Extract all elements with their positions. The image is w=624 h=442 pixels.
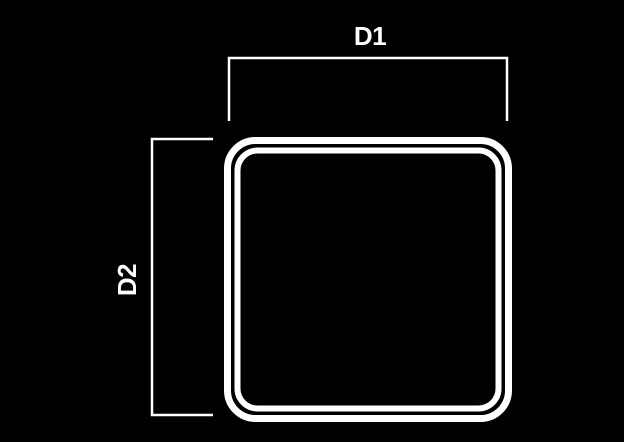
d2-dimension-label: D2 (112, 264, 142, 296)
drawing-background (0, 0, 624, 442)
d1-dimension-label: D1 (354, 21, 386, 51)
diagram-canvas: D1 D2 (0, 0, 624, 442)
dimension-drawing: D1 D2 (0, 0, 624, 442)
